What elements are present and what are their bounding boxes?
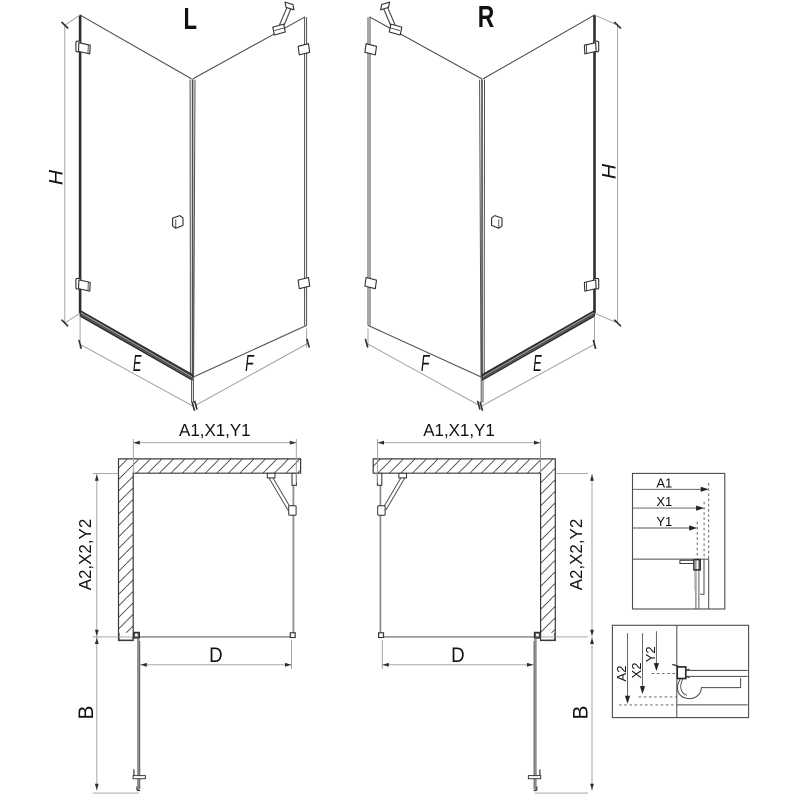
svg-text:H: H (47, 170, 68, 185)
svg-text:D: D (209, 644, 223, 667)
svg-text:A1: A1 (656, 475, 672, 490)
svg-text:X2: X2 (629, 663, 644, 679)
svg-text:Y1: Y1 (656, 514, 672, 529)
svg-text:L: L (184, 1, 198, 36)
svg-text:A1,X1,Y1: A1,X1,Y1 (179, 420, 251, 440)
svg-text:R: R (478, 0, 495, 34)
svg-text:A1,X1,Y1: A1,X1,Y1 (423, 420, 495, 440)
svg-text:X1: X1 (656, 494, 672, 509)
svg-text:E: E (533, 350, 542, 376)
svg-text:E: E (133, 350, 142, 376)
svg-text:B: B (570, 705, 593, 719)
svg-text:A2,X2,Y2: A2,X2,Y2 (566, 519, 586, 591)
svg-text:F: F (421, 350, 431, 376)
svg-text:H: H (599, 164, 620, 179)
svg-text:B: B (75, 705, 98, 719)
svg-text:D: D (451, 644, 465, 667)
svg-text:A2: A2 (614, 666, 629, 682)
svg-text:F: F (245, 350, 255, 376)
svg-text:Y2: Y2 (643, 646, 658, 662)
svg-text:A2,X2,Y2: A2,X2,Y2 (75, 519, 95, 591)
